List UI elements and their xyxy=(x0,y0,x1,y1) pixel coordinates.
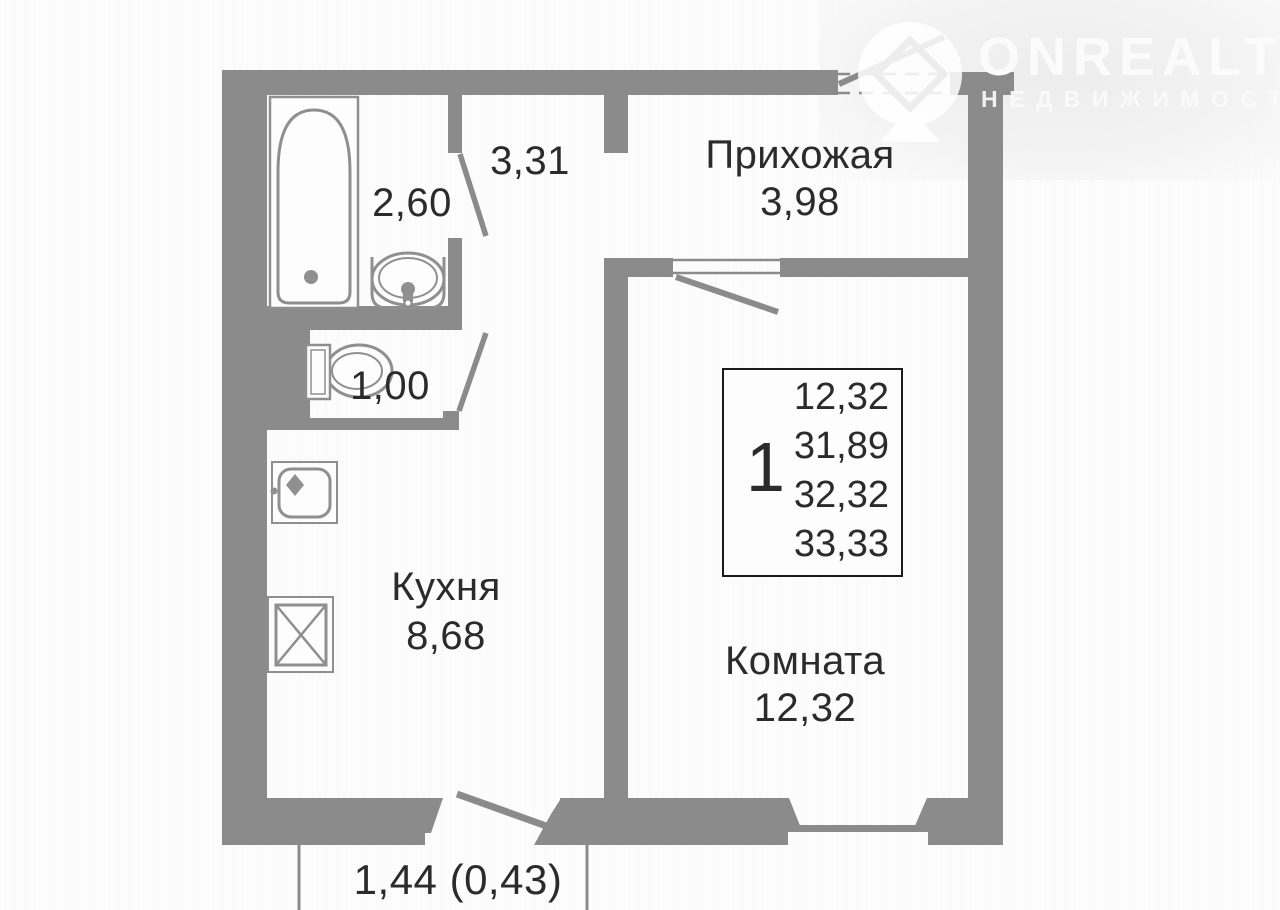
legend-area-reduced: 32,32 xyxy=(794,476,889,516)
room-label-hallway: Прихожая 3,98 xyxy=(650,132,950,226)
room-area-value: 1,44 (0,43) xyxy=(308,856,608,903)
room-label-bathroom: 2,60 xyxy=(262,180,562,227)
window xyxy=(781,798,935,832)
room-label-wc: 1,00 xyxy=(240,363,540,410)
room-name: Прихожая xyxy=(650,132,950,179)
room-label-balcony: 1,44 (0,43) xyxy=(308,856,608,903)
room-label-kitchen: Кухня 8,68 xyxy=(296,563,596,661)
room-area-value: 3,31 xyxy=(380,138,680,185)
room-area-value: 12,32 xyxy=(655,685,955,732)
kitchen-sink-icon xyxy=(271,462,338,523)
room-area-value: 3,98 xyxy=(650,179,950,226)
floor-plan-page: Прихожая 3,98 3,31 2,60 1,00 Кухня 8,68 … xyxy=(0,0,1280,910)
legend-area-living: 12,32 xyxy=(794,378,889,418)
balcony-door xyxy=(425,794,560,845)
washbasin-icon xyxy=(372,253,444,308)
legend-box: 1 12,32 31,89 32,32 33,33 xyxy=(722,368,903,577)
legend-rooms-count: 1 xyxy=(746,432,785,502)
room-area-value: 1,00 xyxy=(240,363,540,410)
room-label-living-room: Комната 12,32 xyxy=(655,638,955,732)
room-label-corridor: 3,31 xyxy=(380,138,680,185)
entry-door xyxy=(836,37,952,93)
room-name: Комната xyxy=(655,638,955,685)
room-door xyxy=(673,260,780,312)
room-area-value: 2,60 xyxy=(262,180,562,227)
legend-area-no-summer: 31,89 xyxy=(794,427,889,467)
legend-area-list: 12,32 31,89 32,32 33,33 xyxy=(794,370,889,575)
legend-area-total: 33,33 xyxy=(794,525,889,565)
room-name: Кухня xyxy=(296,563,596,612)
plan-drawing-layer xyxy=(0,0,1280,910)
room-area-value: 8,68 xyxy=(296,612,596,661)
